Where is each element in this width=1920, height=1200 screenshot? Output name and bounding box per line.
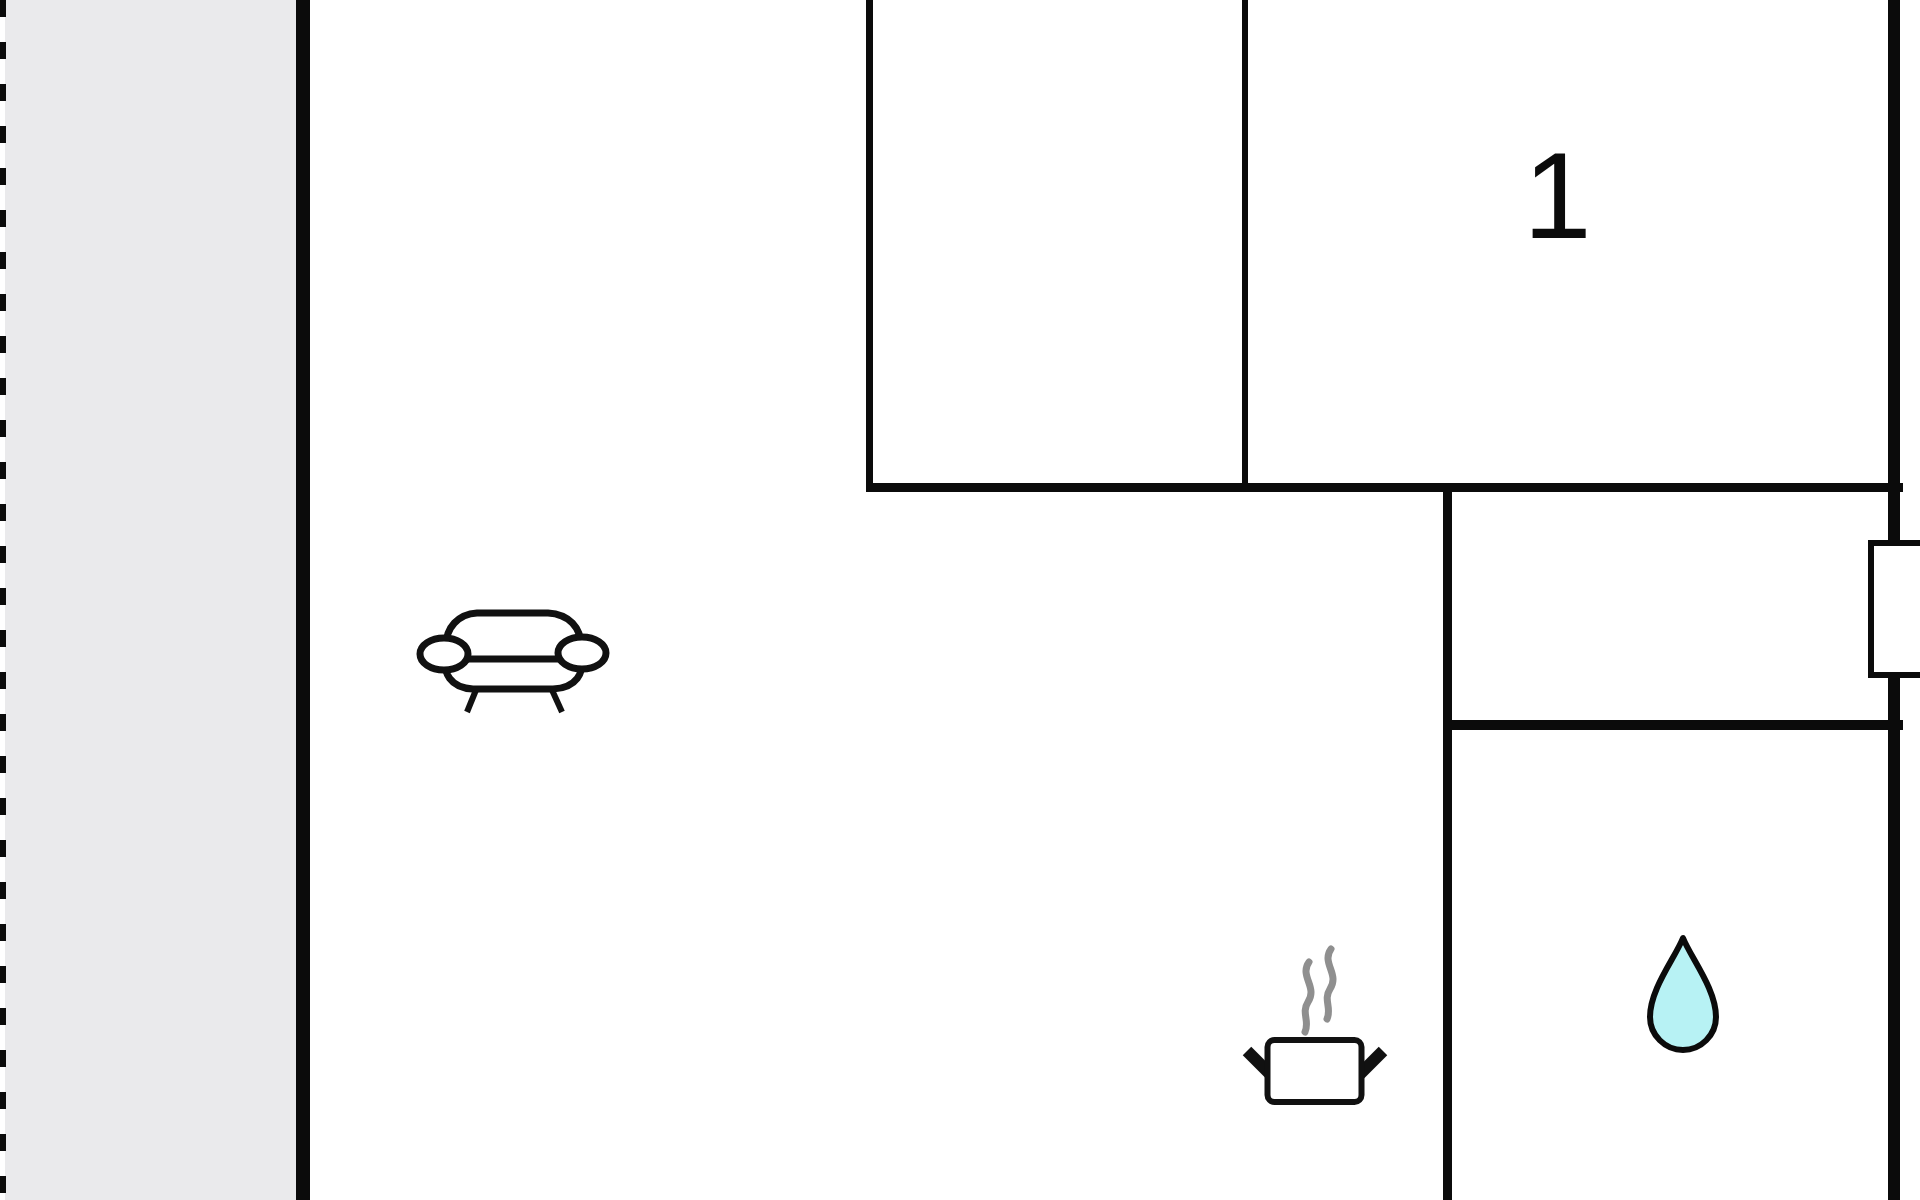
floor-plan: 1 (0, 0, 1920, 1200)
terrace-dashed-boundary (0, 0, 6, 1200)
wall-outer-right-upper (1888, 0, 1900, 540)
terrace-area (5, 0, 296, 1200)
wall-room-divider (1242, 0, 1248, 488)
steam-icon (1305, 962, 1311, 1032)
sofa-armrest-right (558, 637, 606, 669)
water-drop-shape (1650, 938, 1716, 1050)
water-drop-icon (1638, 928, 1728, 1063)
steam-icon (1327, 949, 1333, 1019)
pot-body (1268, 1040, 1362, 1102)
cooking-pot-icon (1240, 935, 1390, 1110)
wall-outer-left (296, 0, 310, 1200)
sofa-leg-left (467, 690, 476, 712)
wall-interior-vertical (1443, 483, 1452, 1200)
room-number-label: 1 (1495, 134, 1620, 257)
wall-hallway-bottom (1443, 720, 1903, 730)
wall-room-left (866, 0, 873, 492)
sofa-icon (415, 600, 613, 720)
sofa-armrest-left (420, 638, 468, 670)
wall-outer-right-lower (1888, 678, 1900, 1200)
window-marker (1868, 540, 1920, 678)
wall-room-bottom (866, 483, 1903, 492)
sofa-leg-right (552, 690, 562, 712)
